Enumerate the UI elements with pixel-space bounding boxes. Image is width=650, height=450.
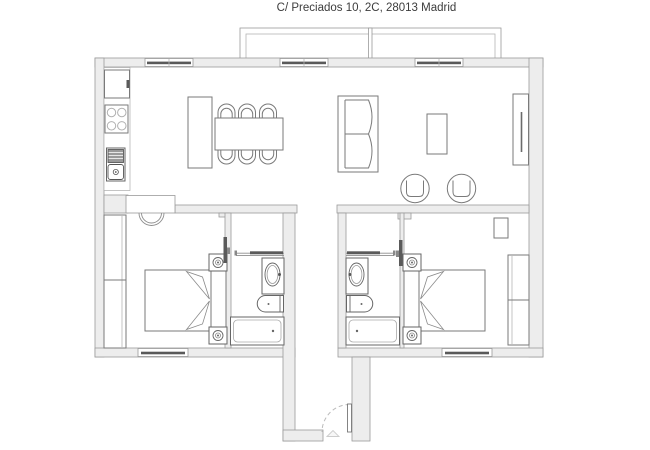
walls [95, 58, 543, 441]
bathroom1-toilet-icon [257, 296, 283, 313]
bathroom2-toilet-icon [347, 296, 373, 313]
coffee-table-icon [427, 114, 447, 154]
window-balcony-left [280, 59, 328, 67]
bedroom1-nightstand-bottom [209, 327, 227, 344]
bedroom2-nightstand-bottom [403, 327, 421, 344]
window-kitchen [145, 59, 193, 67]
window-bedroom-1 [138, 349, 188, 357]
bathroom1-door-track [235, 251, 285, 256]
floorplan-page: C/ Preciados 10, 2C, 28013 Madrid [0, 0, 650, 450]
bathroom2-bathtub-icon [346, 317, 400, 345]
bathroom2-sliding-door [396, 240, 403, 266]
armchair-2-icon [447, 174, 475, 202]
armchair-1-icon [401, 174, 429, 202]
bedroom1-wardrobe [104, 215, 126, 348]
stove-icon [105, 105, 128, 133]
island-counter [188, 97, 212, 168]
bathroom2-washbasin-icon [346, 258, 368, 294]
fridge-icon [105, 70, 130, 98]
kitchen-sink-icon [107, 148, 126, 181]
tv-sideboard-icon [513, 94, 529, 165]
bedroom2-nightstand-top [403, 254, 421, 271]
floorplan-drawing [0, 0, 650, 450]
bedroom1-door [126, 196, 175, 226]
window-bedroom-2 [442, 349, 492, 357]
balcony [240, 28, 501, 59]
bedroom2-wardrobe [508, 255, 529, 345]
window-balcony-right [415, 59, 463, 67]
entry-door [322, 404, 352, 437]
bathroom1-bathtub-icon [231, 317, 285, 345]
dining-table [215, 118, 283, 150]
sofa-icon [338, 96, 378, 172]
bedroom2-cabinet [494, 218, 508, 238]
bathroom2-door-track [346, 251, 396, 256]
bathroom1-washbasin-icon [262, 258, 284, 294]
